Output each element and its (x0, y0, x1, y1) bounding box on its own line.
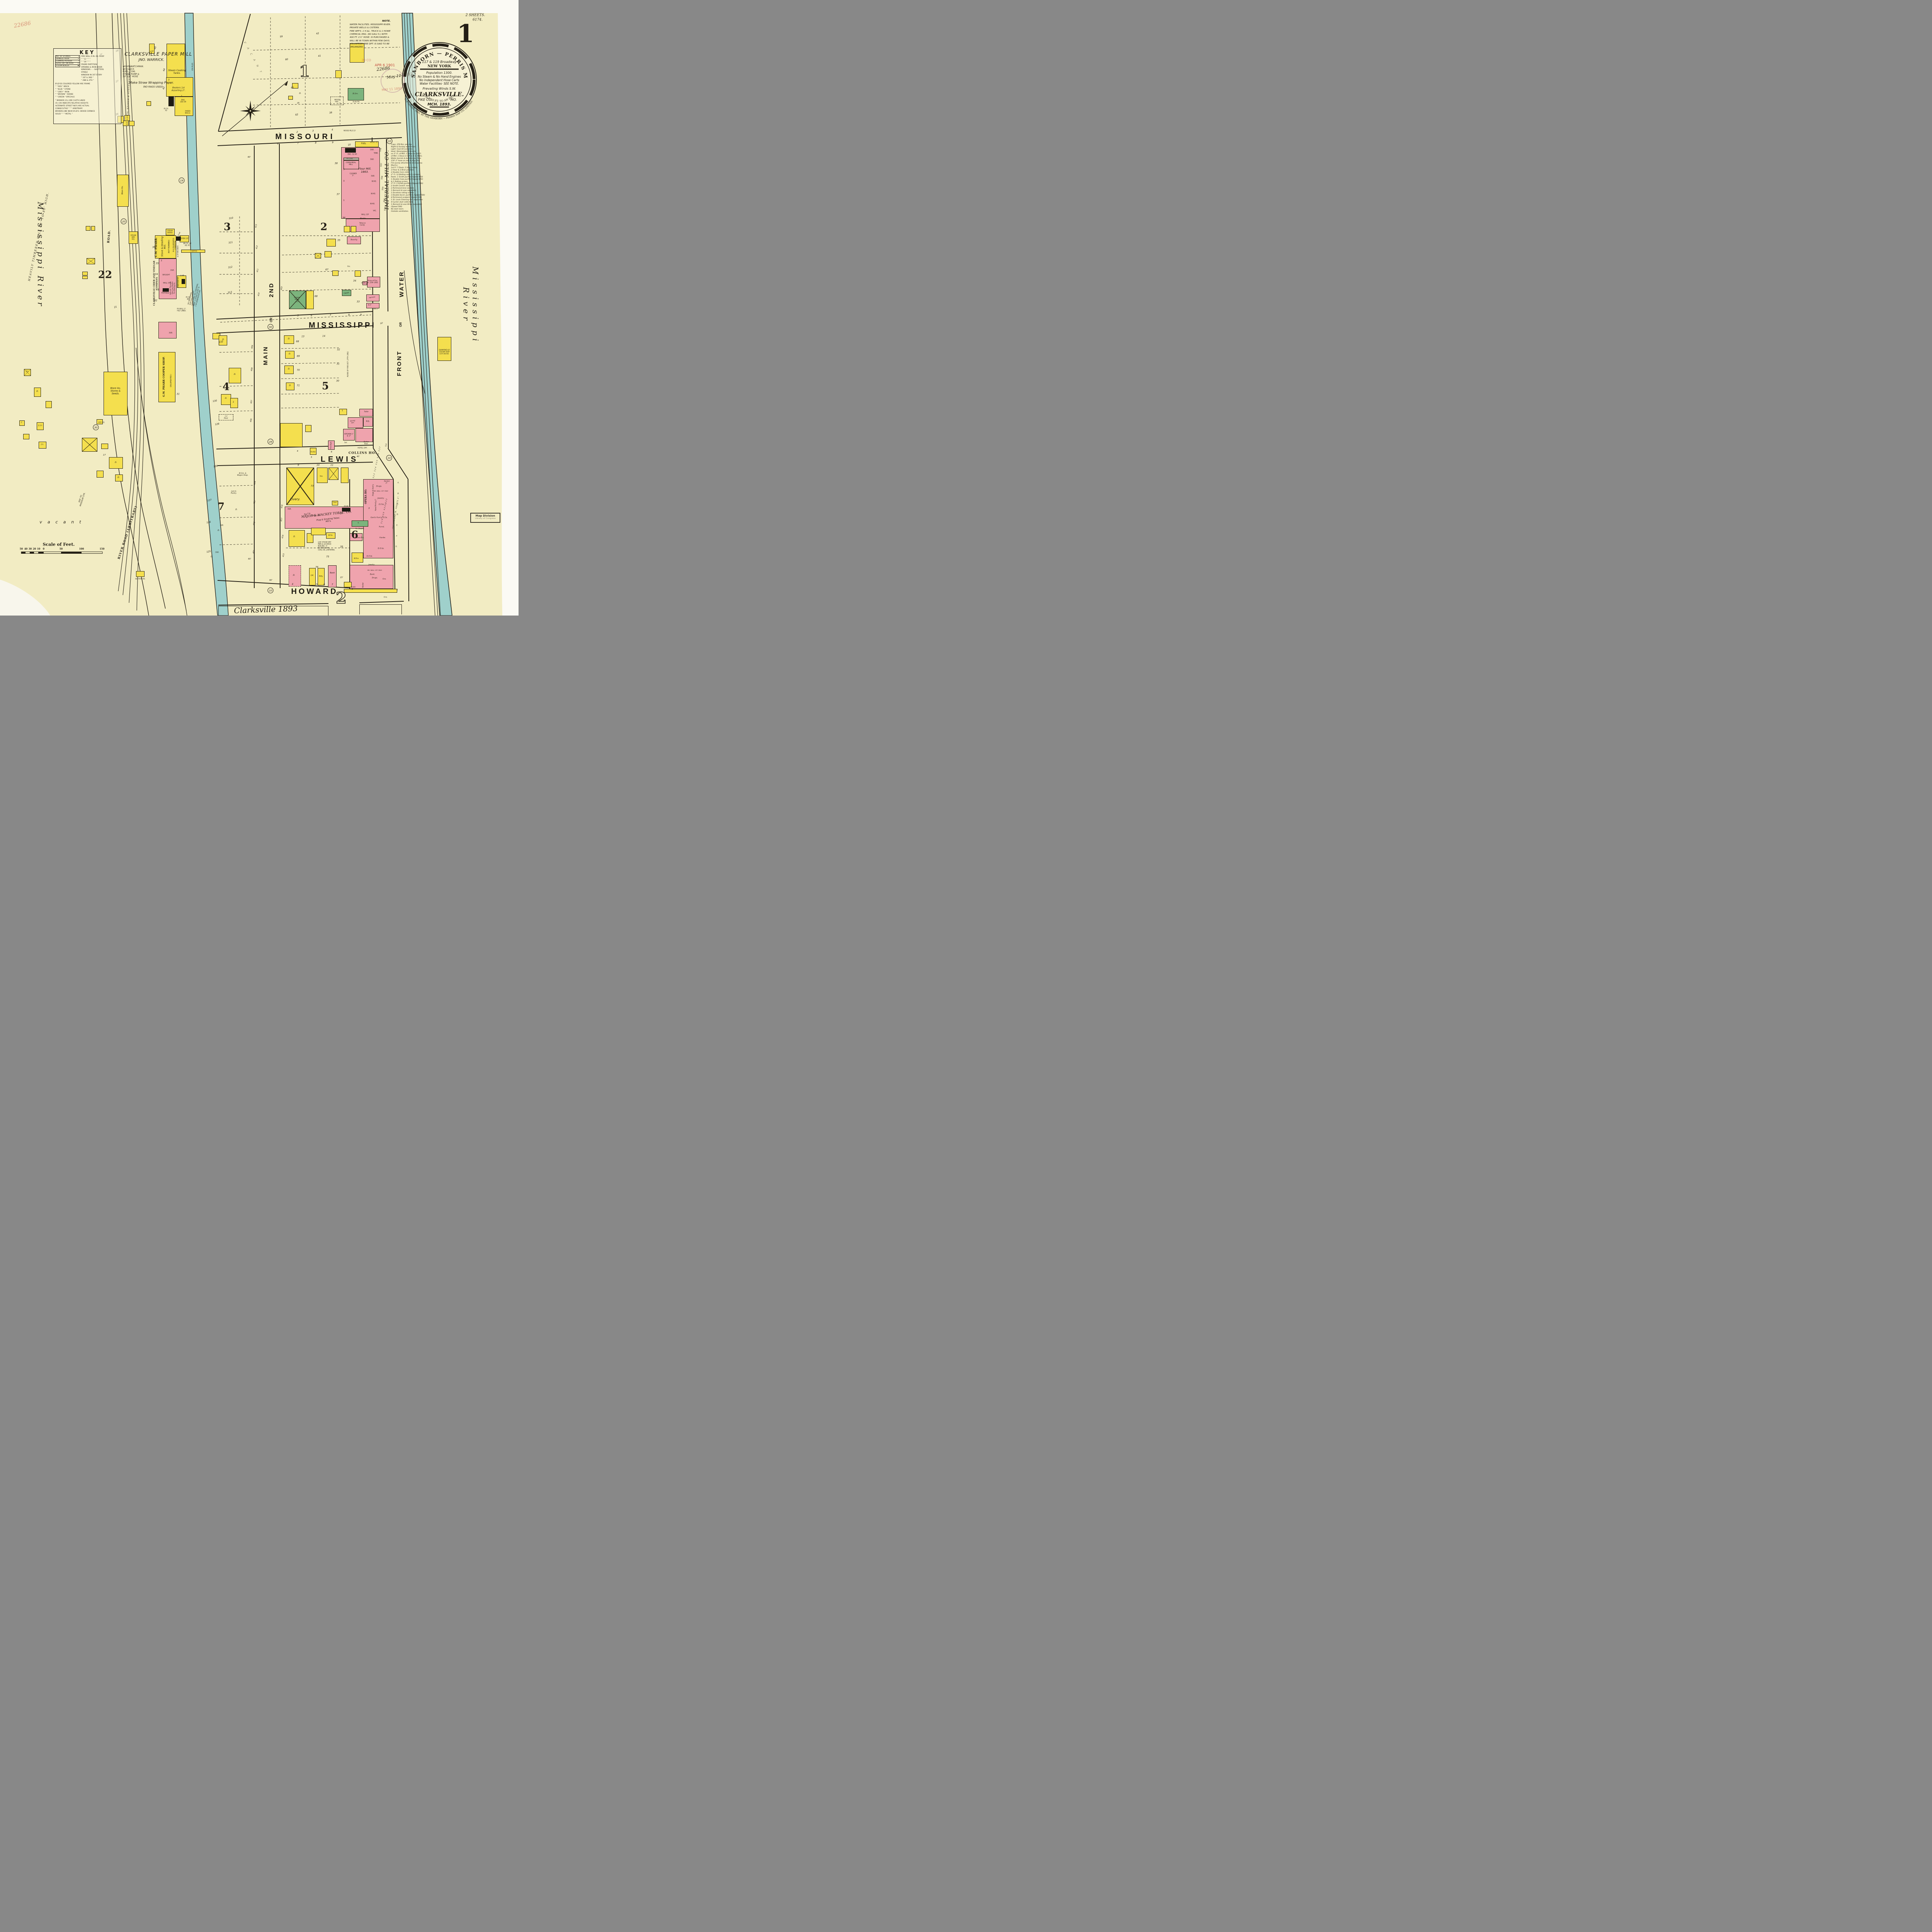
map-label: Ware Ho. (122, 186, 124, 195)
map-label: 2 (396, 589, 398, 592)
map-label: Vac.1° (374, 308, 379, 310)
building (335, 70, 342, 78)
map-label: 68 (296, 340, 299, 343)
map-label: 7 (297, 142, 299, 145)
key-line: " 2ND & 4TH " (81, 80, 119, 82)
map-label: D. (288, 338, 290, 340)
circled-number: 30 (93, 425, 99, 430)
building (158, 322, 177, 338)
map-label: D.2° (368, 304, 372, 306)
scale-tick: 100 (79, 548, 84, 550)
map-label: G. (396, 546, 398, 548)
key-description-column: FIRE WALL 6 IN. AB. ROOF" " 12 " " "" " … (81, 56, 119, 82)
map-label: 2 (168, 79, 170, 81)
map-label: D. (235, 509, 237, 511)
map-label: Bl.Sm. & Wagon Shop. (237, 473, 248, 476)
map-label: IR.CH. 70' (164, 108, 168, 111)
map-label: W.HO. (370, 203, 375, 205)
building (82, 272, 88, 276)
library-stamp-line1: Map Division (471, 514, 500, 517)
map-label: 6 (331, 451, 332, 453)
map-label: D. (225, 398, 227, 400)
map-label: 27 (340, 512, 343, 515)
map-label: Jewelry. (378, 497, 384, 499)
circled-number: 30 (268, 324, 274, 330)
map-label: 3 (343, 180, 344, 183)
scale-tick: 50 (20, 548, 23, 550)
map-label: IR.CLAD (347, 158, 353, 160)
key-color-line: " " RED " BRICK (55, 86, 119, 88)
building (23, 434, 29, 439)
map-label: Hand Print'g 2°. (375, 498, 377, 511)
map-label: D. (36, 391, 38, 393)
map-label: 2 10 HP. PORTABLE (162, 290, 169, 294)
key-symbol-column: NO. OF STORIES3SHINGLE ROOF×COMPOST'N RO… (55, 56, 80, 82)
street-name: OR (399, 322, 402, 327)
map-label: P.O. (366, 421, 369, 423)
map-label: Bl.Sm. (353, 93, 359, 95)
street-name: MISSISSIPPI (309, 321, 376, 330)
map-label: 40' (357, 456, 360, 458)
building (136, 571, 145, 577)
map-label: Fire Dept. (330, 441, 332, 449)
map-label: 4 (332, 128, 333, 131)
map-label: JNO. WARRICK. (139, 58, 165, 63)
circled-number: 10 (268, 588, 274, 594)
map-label: 1 (342, 410, 343, 412)
map-label: 68 (315, 295, 318, 298)
map-label: Tobacco Candy. (359, 222, 366, 226)
map-label: Stave & Heading Mill. (161, 236, 167, 257)
map-label: 5 (311, 456, 312, 459)
map-label: 3 (224, 221, 231, 233)
seal-address: 117 & 119 Broadway (422, 60, 457, 64)
map-label: 71 (297, 384, 300, 387)
map-label: WALL 1ST (361, 214, 369, 216)
key-line: " " 12 " " " (81, 58, 119, 61)
map-label: Bank (330, 572, 335, 575)
seal-population: Population 1300. (426, 71, 452, 75)
key-line: " 1ST & 3RD " (81, 77, 119, 80)
seal-engines: No Steam & No Hand Engines (418, 75, 461, 78)
map-label: 6 (277, 142, 279, 145)
street-name: 2ND (268, 282, 275, 297)
building (158, 352, 175, 402)
map-label: 6 (323, 583, 325, 586)
map-label: E.N. (308, 513, 311, 515)
map-label: 60 (285, 58, 289, 61)
map-label: 75 (326, 555, 329, 558)
map-label: 8 (315, 141, 316, 144)
map-label: Cooper Shop. 1½ (294, 297, 300, 303)
map-label: 22 (98, 269, 112, 281)
key-footer-line: SOLID " " " METAL " (55, 113, 119, 116)
map-label: 11 (330, 464, 333, 466)
map-label: 31 (177, 393, 180, 395)
map-label: D. (293, 536, 295, 538)
map-label: Milly. (319, 575, 323, 577)
building (91, 226, 95, 231)
scale-tick: 150 (100, 548, 105, 550)
map-label: C. (397, 503, 399, 505)
map-label: 69 (297, 355, 300, 357)
map-label: Livery. (290, 497, 300, 501)
map-label: 1 (279, 132, 280, 135)
seal-date: MCH. 1893. (427, 102, 451, 107)
map-label: 6 (311, 314, 312, 317)
map-label: D. (289, 385, 291, 387)
building (101, 444, 108, 449)
map-label: FR.WALL 3°. FELT LINED. (177, 308, 186, 311)
seal-city: NEW YORK (427, 64, 451, 68)
map-label: ICE HO. (99, 422, 105, 423)
map-label: 70 (297, 369, 300, 371)
map-label: (DILAPIDATED.) (170, 374, 172, 387)
map-label: W.HO. (372, 181, 377, 183)
map-label: Tailor (364, 411, 369, 413)
map-label: PAPER MACH. (185, 111, 190, 114)
sheet-edge-corner (0, 580, 50, 616)
map-label: 2 SHEETS. (466, 14, 485, 18)
map-label: 5 (316, 583, 318, 586)
map-label: VAC. (373, 210, 376, 212)
key-color-line: B'LD'GS COLORED YELLOW ARE FRAME (55, 83, 119, 86)
map-label: Drugs. (372, 577, 378, 579)
map-label: 2 (296, 131, 298, 133)
map-label: 33 (357, 300, 360, 303)
map-label: Gro. (383, 578, 386, 580)
sheet-edge-top (0, 0, 519, 13)
map-label: Ruins of Fire Jan. 25th 1892. (367, 280, 379, 283)
key-symbol-text: ▬ (78, 65, 79, 67)
map-label: 2 (233, 401, 234, 404)
map-label: 6 (351, 529, 358, 541)
building (97, 471, 104, 478)
map-label: Scales (311, 451, 316, 453)
map-label: EVAPORATOR. (178, 277, 180, 287)
map-label: E. (396, 524, 398, 526)
building (315, 253, 321, 259)
map-label: D. (288, 368, 290, 371)
key-title: KEY (55, 50, 119, 56)
building (176, 236, 181, 241)
map-label: Steam Cooking Tanks. (168, 69, 186, 75)
map-label: D.G'ds. 2°. (379, 504, 387, 506)
map-label: Dentist 2°. (384, 480, 389, 484)
imperial-note-line: Outside ventilation. (391, 211, 443, 213)
street-name: MISSOURI (276, 133, 335, 142)
map-label: 3½ (26, 371, 28, 372)
map-label: 1½ (41, 444, 43, 446)
map-key: KEY NO. OF STORIES3SHINGLE ROOF×COMPOST'… (53, 48, 121, 124)
map-label: 10 (316, 464, 320, 466)
key-symbol-row: STEAM BOILER▬ (55, 65, 80, 67)
map-label: Vats All Through. Use Live Steam For Boi… (170, 281, 176, 295)
building (230, 398, 238, 408)
map-label: 41 (318, 54, 321, 58)
map-label: 73 (311, 485, 314, 487)
map-label: F. (396, 535, 397, 537)
scale-bar (21, 552, 102, 554)
map-label: Board'g (351, 239, 357, 241)
map-label: 59 (280, 35, 283, 38)
library-stamp: Map Division Library of Congress (470, 513, 500, 523)
map-label: 4 (223, 381, 230, 393)
map-label: 7 (330, 314, 331, 316)
note-line: CHEMICAL ENG. (60 GALL'S.) WITH (350, 33, 423, 36)
map-label: ON PILES. (192, 62, 194, 70)
map-label: 9 (298, 464, 299, 466)
street-name: COLLINS HO. (349, 451, 376, 454)
map-label: C (21, 422, 22, 423)
map-label: 9 (332, 141, 333, 144)
map-label: 14 (322, 335, 325, 337)
map-label: D. (218, 530, 219, 532)
building (288, 96, 293, 100)
map-label: 42 (316, 32, 320, 35)
map-label: D. (222, 339, 224, 341)
map-label: BR.CH. 50' AB. RF. (183, 243, 191, 246)
note-line: WATER FACILITIES. MISSISSIPPI RIVER. (350, 23, 423, 26)
map-label: HOTEL OFF. (357, 447, 367, 449)
key-color-line: " " BLUE " STONE (55, 88, 119, 91)
map-label: OPERA HO. (364, 489, 367, 504)
map-label: E. (358, 522, 359, 524)
map-label: Vac. (320, 475, 323, 477)
building (327, 239, 336, 247)
circled-number: 10 (387, 138, 393, 144)
map-label: (NO RAGS USED) (143, 85, 163, 88)
building (82, 276, 88, 279)
map-label: Drugs. (376, 485, 382, 487)
key-footer-line: ALTERNATE STREET NO'S ARE ACTUAL (55, 105, 119, 108)
map-label: WOOD PILE. (334, 99, 339, 102)
map-label: 20 CO (362, 58, 371, 62)
map-label: 33 (156, 288, 159, 291)
map-label: 1 (343, 200, 344, 202)
scale-tick: 20 (33, 548, 36, 550)
map-label: 3 (368, 507, 370, 510)
map-label: 1 (299, 62, 310, 80)
circled-number: 19 (179, 178, 185, 184)
map-label: 2&B. (170, 270, 174, 272)
map-label: 35 (156, 262, 159, 265)
map-label: WOOD PILE 15' (344, 130, 356, 132)
building (280, 423, 303, 447)
map-label: A. (398, 482, 399, 484)
map-label: Ware Rm. (356, 537, 364, 539)
river-name-left: Mississippi River (36, 202, 45, 308)
map-label: W.Rm (354, 558, 359, 560)
map-label: IMPERIAL MILL CO. (384, 150, 390, 210)
map-label: 4 (297, 450, 298, 452)
map-label: 61 (291, 86, 294, 89)
map-label: 5 (297, 314, 299, 317)
map-label: 10 (348, 143, 351, 146)
map-label: 62 (295, 113, 299, 116)
map-label: KITCHEN 1° D. 2° (344, 433, 353, 437)
map-label: 3&B. (287, 509, 291, 510)
map-label: D. (115, 462, 117, 464)
map-label: D. (293, 575, 295, 577)
map-label: Dining Rm. (350, 420, 355, 424)
key-symbol-text: STEAM BOILER (56, 65, 69, 67)
building (344, 226, 350, 232)
map-label: 8 (348, 313, 350, 316)
map-label: G.W. PHARR COOPER SHOP. (163, 357, 166, 397)
map-label: CLEANER 3°. (350, 173, 357, 176)
map-label: W.HO. (371, 193, 376, 195)
map-label: Barber (362, 582, 364, 587)
map-label: STEAM BOXES (167, 230, 173, 233)
map-label: 34 (155, 273, 158, 276)
map-label: D. (234, 374, 236, 376)
key-footer: " MARKED (CL) ARE CLOTH LINED(5) (19) IN… (55, 100, 119, 116)
building (82, 438, 97, 452)
building (328, 468, 338, 480)
circled-number: 20 (121, 219, 127, 224)
building (46, 401, 52, 408)
key-footer-line: CONSECUTIVE " " " ARBITRARY (55, 108, 119, 111)
map-label: Vac. (347, 266, 350, 268)
building (87, 258, 95, 264)
scale-tick: 50 (60, 548, 63, 550)
map-label: 2&B. (215, 552, 219, 554)
map-label: B. (398, 493, 399, 495)
map-label: FUEL (361, 143, 366, 145)
map-label: Gent's Furn'g & Clo. (371, 517, 388, 519)
map-label: 32 (337, 348, 340, 351)
map-label: D.G'ds (367, 555, 372, 557)
seal-water: Water Facilities· SEE NOTE. (420, 82, 459, 85)
map-label: 32 (154, 299, 157, 302)
seal-town: CLARKSVILLE. (415, 91, 464, 98)
building (311, 528, 326, 535)
map-label: Coal. (333, 502, 337, 504)
map-label: 3&B. (169, 332, 173, 334)
map-label: Beaters 1st Assorting 2°. (172, 87, 185, 92)
map-label: 2 (161, 260, 162, 262)
map-label: 13 (301, 335, 304, 338)
map-label: D.G'ds. (378, 548, 384, 549)
building (306, 291, 314, 309)
map-label: 5 HP. (180, 275, 184, 277)
map-label: Scale Ho. (353, 101, 360, 103)
key-line: " " 18 " " " (81, 61, 119, 64)
map-label: 1 (181, 95, 182, 98)
scale-tick: 30 (29, 548, 32, 550)
map-label: Bank. (370, 573, 375, 575)
note-line: PRIVATE WELLS & CISTERN. (350, 26, 423, 29)
key-colors: B'LD'GS COLORED YELLOW ARE FRAME" " RED … (55, 83, 119, 99)
key-line: FIRE WALL 6 IN. AB. ROOF (81, 56, 119, 58)
map-label: ENG. 52 HP. (348, 154, 357, 156)
map-label: 35 (337, 239, 340, 241)
street-name: FRONT (396, 350, 403, 376)
map-label: 38 (329, 111, 333, 114)
map-label: Jewelry. (369, 564, 375, 566)
received-stamp-circle (381, 69, 405, 93)
map-label: 3&B. (371, 175, 375, 177)
map-label: 31 (337, 362, 340, 365)
map-label: DIAMOND JO STEAM SHIP CO'S W.HO. (439, 349, 450, 355)
map-label: CLARKSVILLE PAPER MILL (125, 51, 192, 57)
map-label: OVEN. (361, 282, 366, 284)
compass-rose (222, 81, 288, 136)
map-label: D. (397, 514, 399, 515)
map-label: 2 (352, 588, 353, 591)
map-label: vacant (39, 520, 86, 525)
building (355, 270, 361, 277)
circled-number: 28 (268, 439, 274, 445)
map-label: 3 (343, 169, 344, 171)
street-name: OR (269, 318, 273, 322)
seal-hose: No Independent Hose Carts (419, 78, 459, 82)
scale-bar-title: Scale of Feet. (43, 543, 75, 548)
map-label: 76 (315, 566, 318, 568)
map-label: Junk & Poultry. (231, 490, 236, 494)
map-label: IN A DILAPIDATED CONDITION. (173, 238, 176, 252)
map-label: IR.CH. 80' (186, 296, 190, 300)
building (146, 101, 151, 106)
map-label: 2 (320, 221, 327, 233)
map-label: BR. WALL 1ST ONLY. (367, 570, 382, 571)
map-label: 36 (342, 216, 345, 219)
seal-county: PIKE CO. (418, 98, 432, 102)
building (351, 226, 356, 232)
map-label: Gro. (384, 596, 388, 598)
building (86, 226, 90, 231)
map-label: 67 (325, 268, 328, 271)
map-label: Stage & Scen'y. (372, 484, 374, 496)
key-footer-line: BROKEN LINE NEAR B'LD'G -WOOD CORNICE (55, 111, 119, 113)
building (352, 520, 368, 527)
map-label: 3 (312, 129, 314, 132)
map-label: OPEN 1ST (181, 238, 189, 240)
map-label: 34 (353, 279, 356, 282)
map-label: 3&B. (370, 159, 374, 161)
map-label: Barber Bast. (364, 441, 369, 444)
map-label: 5 (322, 381, 329, 393)
library-stamp-line2: Library of Congress (471, 517, 500, 520)
street-name: HOWARD (291, 587, 338, 597)
map-label: 17 (103, 454, 106, 456)
building (344, 582, 352, 587)
scale-tick: 40 (24, 548, 27, 550)
key-line: FRAME PARTITION (81, 64, 119, 66)
map-label: SECTION HO. (135, 578, 145, 580)
map-label: W.Ho (328, 534, 332, 536)
map-label: 37 (337, 193, 340, 196)
map-label: RUINS OF FIRE OCT. 27TH 1892. (347, 351, 349, 377)
seal-winds: Prevailing Winds S.W. (423, 87, 456, 90)
map-label: NIGHT WATCHMAN. NO CLOCK. FUEL: COAL STE… (123, 66, 144, 78)
street-name: MAIN (262, 346, 269, 365)
map-label: 2&B. (370, 149, 374, 151)
map-label: 20 HP. (344, 506, 349, 508)
building (168, 97, 174, 106)
building (332, 270, 338, 276)
building (325, 251, 332, 257)
map-label: 36 (297, 102, 299, 105)
map-label: Sal. (344, 442, 347, 444)
building (129, 121, 134, 126)
map-label: D. (211, 556, 213, 558)
map-label: CORN MEAL MILL (346, 162, 356, 166)
map-label: Flour Mill. 1863. (358, 167, 371, 174)
note-title: NOTE. (350, 19, 423, 23)
building (359, 604, 402, 614)
